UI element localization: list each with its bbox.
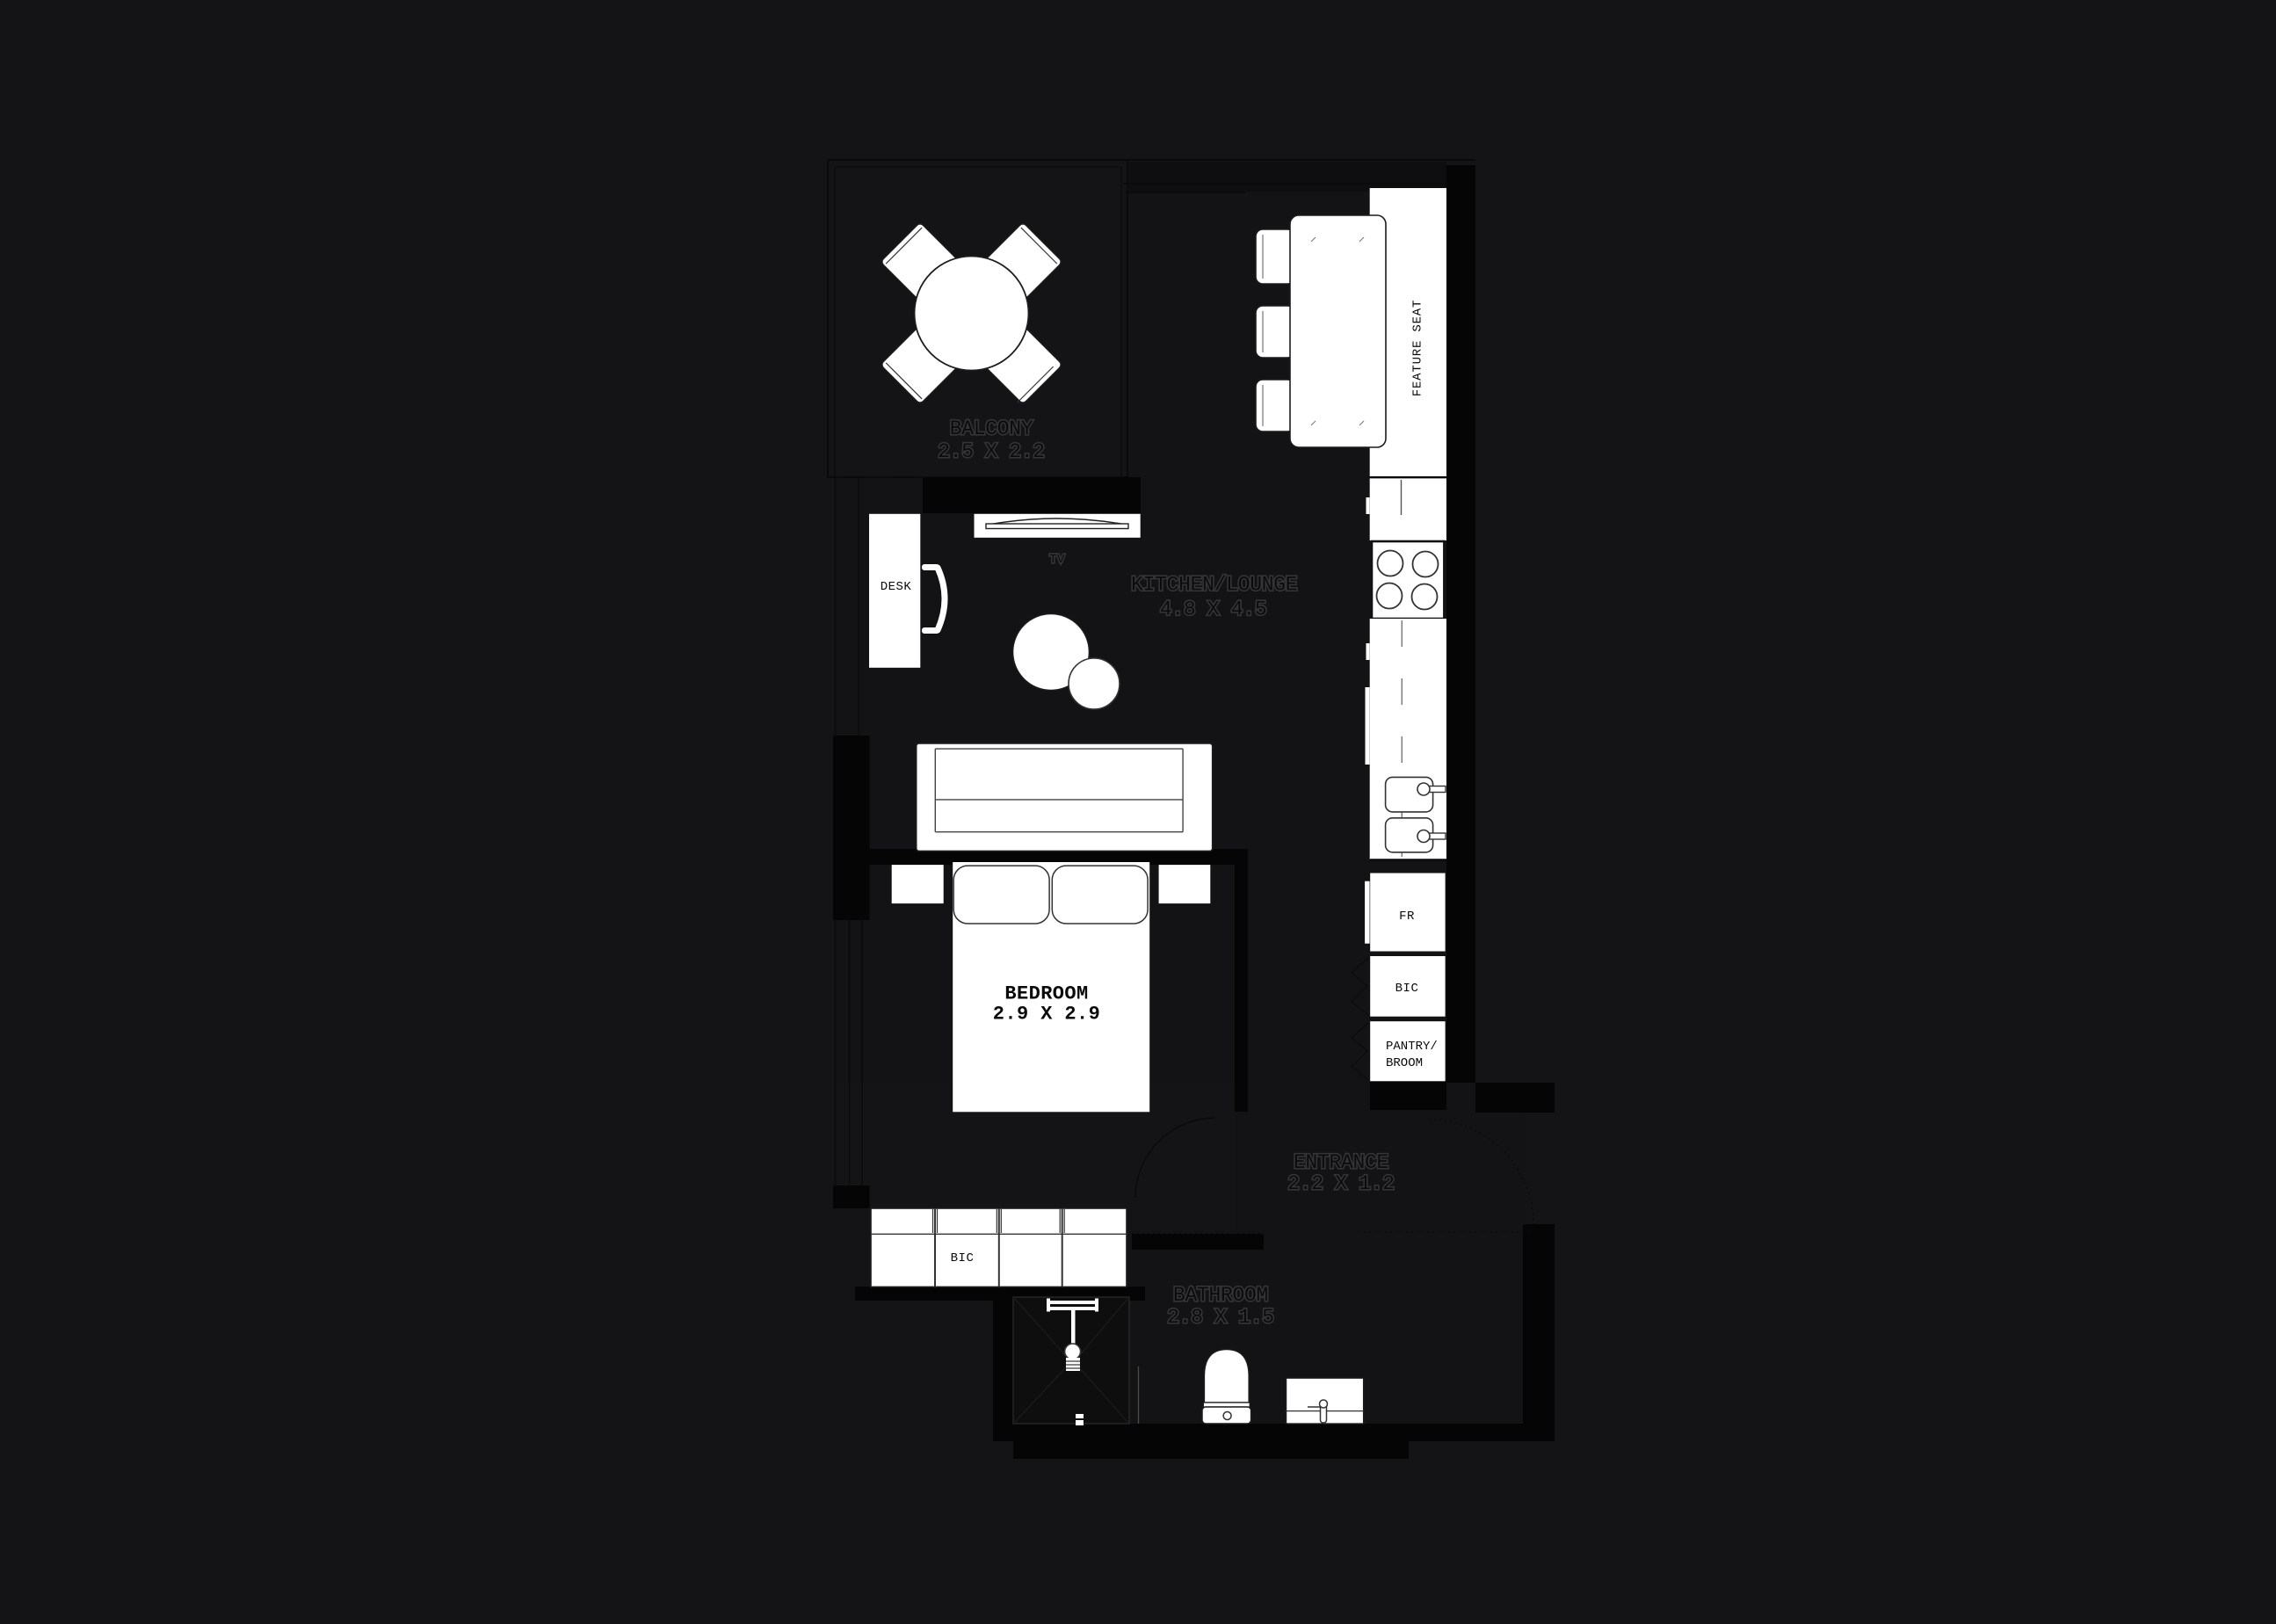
svg-text:TV: TV xyxy=(1049,553,1065,567)
svg-text:BIC: BIC xyxy=(1395,982,1419,996)
svg-text:DESK: DESK xyxy=(881,580,912,594)
svg-text:2.5 X 2.2: 2.5 X 2.2 xyxy=(938,440,1045,463)
svg-text:BROOM: BROOM xyxy=(1386,1056,1423,1070)
svg-text:ENTRANCE: ENTRANCE xyxy=(1294,1151,1388,1174)
svg-text:4.8 X 4.5: 4.8 X 4.5 xyxy=(1160,598,1267,621)
svg-text:2.2 X 1.2: 2.2 X 1.2 xyxy=(1287,1172,1395,1195)
svg-text:2.8 X 1.5: 2.8 X 1.5 xyxy=(1167,1306,1274,1329)
svg-text:2.9 X 2.9: 2.9 X 2.9 xyxy=(993,1004,1100,1026)
svg-text:FEATURE SEAT: FEATURE SEAT xyxy=(1411,300,1425,396)
svg-text:KITCHEN/LOUNGE: KITCHEN/LOUNGE xyxy=(1131,574,1297,597)
svg-text:FR: FR xyxy=(1399,910,1415,924)
svg-text:BATHROOM: BATHROOM xyxy=(1173,1284,1268,1307)
svg-text:BALCONY: BALCONY xyxy=(950,417,1033,440)
svg-text:BEDROOM: BEDROOM xyxy=(1004,983,1088,1005)
svg-text:BIC: BIC xyxy=(951,1251,975,1265)
svg-text:PANTRY/: PANTRY/ xyxy=(1386,1040,1438,1054)
